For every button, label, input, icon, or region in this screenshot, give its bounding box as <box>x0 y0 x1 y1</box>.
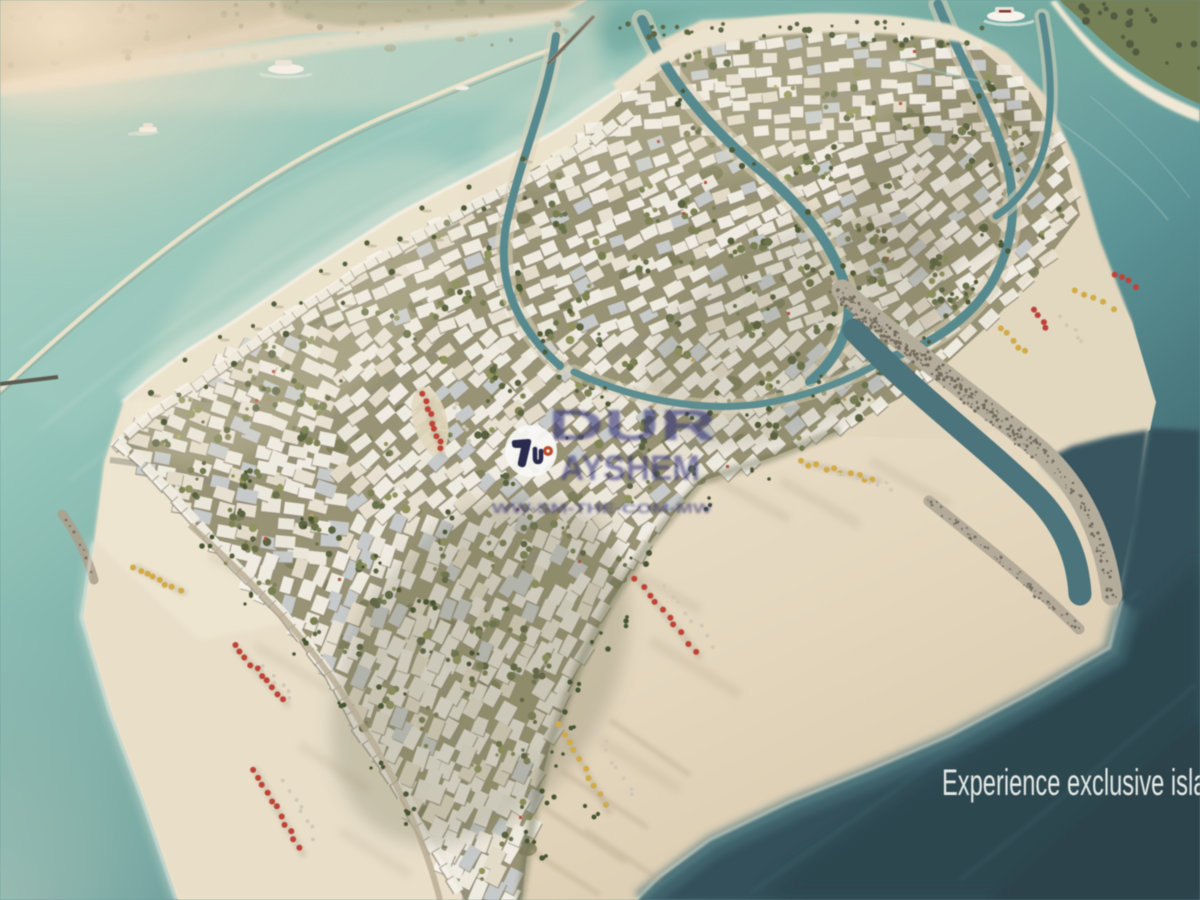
svg-text:WW-SM-THE-COM-MW: WW-SM-THE-COM-MW <box>492 500 713 516</box>
svg-text:Experience exclusive islands: Experience exclusive islands <box>942 762 1200 804</box>
svg-text:DUR: DUR <box>548 401 716 450</box>
svg-text:AYSHEM: AYSHEM <box>560 449 700 488</box>
